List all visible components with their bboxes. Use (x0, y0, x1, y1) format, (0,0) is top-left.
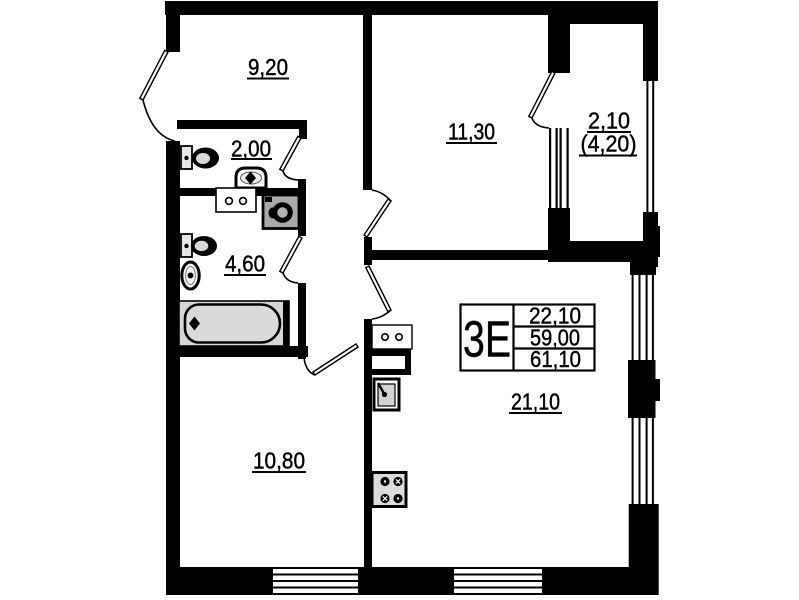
svg-text:4,60: 4,60 (225, 251, 265, 277)
svg-text:11,30: 11,30 (448, 119, 495, 145)
svg-text:2,00: 2,00 (231, 136, 271, 162)
svg-text:10,80: 10,80 (253, 448, 305, 474)
svg-text:21,10: 21,10 (511, 389, 560, 415)
svg-text:9,20: 9,20 (248, 54, 288, 80)
svg-text:(4,20): (4,20) (581, 131, 637, 157)
svg-text:61,10: 61,10 (530, 346, 581, 372)
svg-text:3Е: 3Е (463, 311, 511, 368)
